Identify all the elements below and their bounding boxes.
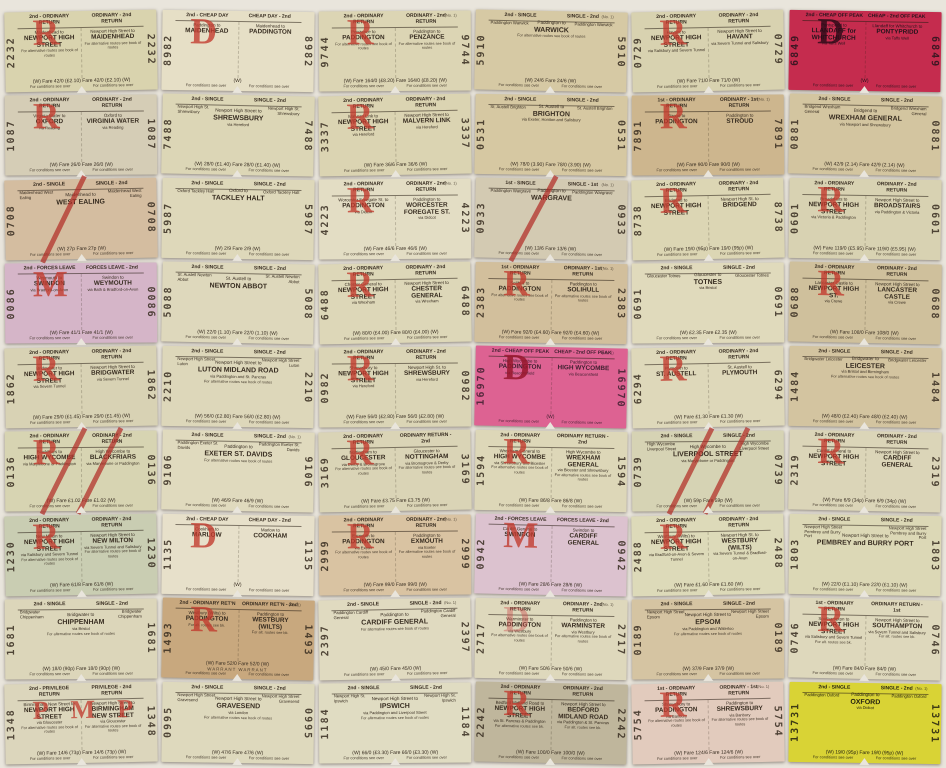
conditions-text-left: For conditions see over — [344, 505, 385, 510]
conditions-line: For conditions see over For conditions s… — [19, 587, 145, 594]
railway-ticket: 0189 2nd - SINGLE SINGLE - 2nd — [632, 598, 785, 679]
conditions-line: For conditions see over For conditions s… — [646, 419, 772, 426]
outward-half: Bridgend to NEWPORT HIGH STREET — [645, 196, 709, 248]
return-half: Paddington to STROUD — [708, 111, 771, 162]
class-header-right: FORCES LEAVE - 2nd — [83, 266, 141, 272]
conditions-text-right: For conditions see over — [719, 504, 759, 509]
routes-note: For alternative routes see book of route… — [84, 40, 142, 50]
outward-half: Maidenhead to NEWPORT HIGH STREET For al… — [18, 28, 82, 80]
corner-text-left: Maidenhead West Ealing — [20, 190, 62, 200]
route-via-text: via Marylebone or Paddington — [647, 458, 769, 464]
railway-ticket: 0708 2nd - SINGLE SINGLE - 2nd — [5, 178, 159, 261]
corner-text-right: St. Austell Brighton — [577, 106, 612, 111]
ticket-body: Havant to NEWPORT HIGH STREET via Salisb… — [645, 26, 772, 79]
ticket-face: 2nd - SINGLE SINGLE - 2nd — [18, 601, 145, 678]
conditions-text-left: For conditions see over — [657, 85, 698, 90]
serial-number-right: 7891 — [771, 94, 785, 174]
serial-number-right: 0739 — [771, 430, 785, 510]
return-halves: Broadstairs to NEWPORT HIGH STREET via V… — [801, 195, 928, 248]
single-span: Paddington Exeter St. Davids Paddington … — [174, 440, 301, 499]
conditions-text-right: For conditions see over — [875, 169, 916, 175]
serial-number-left: 2397 — [318, 600, 333, 680]
serial-number-right: 1484 — [927, 348, 941, 428]
class-header-right: ORDINARY RETURN - 2nd — [396, 433, 454, 446]
ticket-body: Weymouth to SWINDON via Bradford-on-Avon… — [18, 273, 144, 330]
conditions-line: For conditions see over For conditions s… — [646, 755, 772, 762]
route-via-text: via Victoria & Paddington — [804, 215, 863, 221]
ticket-face: (No. 1) 2nd - SINGLE SINGLE - 2nd — [174, 432, 302, 511]
railway-ticket: 0729 2nd - ORDINARY RETURN ORDINARY - 2n… — [631, 10, 785, 93]
routes-note: For alternative routes see book of route… — [554, 634, 612, 644]
conditions-line: For conditions see over For conditions s… — [332, 671, 458, 678]
ticket-face: 2nd - FORCES LEAVE FORCES LEAVE - 2nd We… — [18, 265, 145, 342]
return-halves: Blackfriars to HIGH WYCOMBE via Marylebo… — [18, 447, 144, 499]
conditions-line: For conditions see over For conditions s… — [801, 167, 927, 174]
ticket-face: 2nd - PRIVILEGE RETURN PRIVILEGE - 2nd R… — [18, 684, 145, 762]
serial-number-left: 5987 — [161, 178, 175, 258]
conditions-line: For conditions see over For conditions s… — [801, 587, 927, 594]
corner-text-right: Paddington Oxford — [891, 694, 926, 699]
serial-number-right: 0531 — [614, 96, 628, 176]
ticket-body: Shrewsbury to PADDINGTON via Banbury For… — [645, 698, 772, 751]
conditions-line: For conditions see over For conditions s… — [174, 671, 300, 678]
outward-half: Shrewsbury to NEWPORT HIGH STREET via He… — [331, 364, 394, 415]
route-via-text: via Crewe — [804, 299, 863, 305]
return-half: Newport High Street to CHESTER GENERAL v… — [394, 278, 458, 330]
routes-note: For alt. routes see bk. — [554, 725, 612, 731]
corner-text-left: Newport High St. Shrewsbury — [177, 104, 219, 115]
routes-note: For alternative routes see book of route… — [334, 466, 393, 476]
class-header-left: 2nd - ORDINARY RETURN — [21, 434, 79, 446]
routes-note: For alternative routes see book of route… — [398, 550, 456, 559]
ticket-body: Bridgwater Leicester Bridgwater Leiceste… — [801, 357, 928, 416]
route-via-text: via Paddington & Victoria — [868, 210, 926, 216]
routes-note: For alternative routes see book of route… — [490, 633, 549, 643]
railway-ticket: 7891 (No. 1) 1st - ORDINARY RETURN ORDIN… — [632, 94, 785, 175]
serial-number-right: 9106 — [300, 432, 315, 512]
conditions-text-left: For conditions see over — [499, 503, 540, 508]
outward-half: Broadstairs to NEWPORT HIGH STREET via V… — [801, 195, 865, 247]
destination-text: BRIDGEND — [711, 202, 769, 210]
railway-ticket: 2999 (No. 1) 2nd - ORDINARY RETURN ORDIN… — [318, 514, 471, 595]
outward-half: Bedford Midland Road to NEWPORT HIGH STR… — [488, 698, 552, 750]
conditions-line: For conditions see over For conditions s… — [174, 335, 300, 342]
railway-ticket: 1862 2nd - ORDINARY RETURN ORDINARY - 2n… — [5, 346, 159, 429]
return-half: Newport High Street to MAIDENHEAD For al… — [81, 26, 145, 78]
conditions-text-left: For conditions see over — [499, 419, 540, 425]
route-via-text: via Reading — [84, 125, 142, 130]
return-halves: Cookham to MARLOW Marlow to COOKHAM — [175, 525, 302, 584]
conditions-text-right: For conditions see over — [248, 169, 289, 175]
corner-text-right: Paddington Wargrave — [572, 190, 612, 196]
outward-half: Cardiff General to NEWPORT HIGH STREET — [801, 446, 865, 498]
serial-number-left: 4223 — [318, 179, 332, 259]
ticket-face: (No. 1) 2nd - SINGLE SINGLE - 2nd — [801, 684, 928, 762]
conditions-text-left: For conditions see over — [657, 253, 698, 258]
railway-ticket: 2717 (No. 1) 2nd - ORDINARY RETURN ORDIN… — [475, 598, 628, 680]
ticket-face: 2nd - ORDINARY RETURN ORDINARY - 2nd RET… — [18, 433, 145, 510]
class-header-left: 2nd - SINGLE — [648, 602, 706, 608]
outward-half: Paddington to MAIDENHEAD — [175, 21, 239, 79]
serial-number-right: 0691 — [771, 262, 785, 342]
ticket-face: 2nd - ORDINARY RETURN ORDINARY - 2nd RET… — [331, 349, 458, 426]
conditions-line: For conditions see over For conditions s… — [646, 83, 772, 90]
series-number-note: (No. 1) — [757, 97, 769, 102]
return-halves: High Wycombe to PADDINGTON via Beaconsfi… — [488, 356, 615, 415]
destination-text: WESTBURY (WILTS) — [241, 617, 299, 632]
route-via-text: via Wrexham — [334, 300, 393, 306]
ticket-body: Broadstairs to NEWPORT HIGH STREET via V… — [801, 195, 928, 248]
outward-half: Cardiff General to SWINDON — [488, 524, 552, 582]
class-header-left: 2nd - SINGLE — [179, 97, 237, 104]
ticket-face: 2nd - SINGLE SINGLE - 2nd — [174, 348, 301, 426]
conditions-line: For conditions see over For conditions s… — [488, 419, 614, 426]
outward-half: Wrexham General to HIGH WYCOMBE via Shre… — [488, 447, 552, 499]
ticket-body: Birmingham New Street to NEWPORT HIGH ST… — [18, 698, 145, 751]
ticket-face: 2nd - ORDINARY RETURN ORDINARY RETURN - … — [331, 432, 458, 510]
return-half: Paddington to SHREWSBURY via Banbury For… — [708, 698, 772, 750]
destination-text: PADDINGTON — [241, 29, 299, 37]
single-span: St. Austell Newton Abbot St. Austell New… — [174, 272, 301, 331]
conditions-line: For conditions see over For conditions s… — [801, 755, 927, 762]
ticket-face: (No. 1) 2nd - ORDINARY RETURN ORDINARY -… — [331, 13, 458, 90]
railway-ticket: 6294 2nd - ORDINARY RETURN ORDINARY - 2n… — [631, 346, 785, 429]
ticket-face: (No. 1) 2nd - CHEAP OFF PEAK CHEAP - 2nd… — [488, 348, 616, 427]
return-half: Llandaff for Whitchurch to PONTYPRIDD vi… — [864, 22, 928, 80]
single-span: Paddington Warwick Paddington Warwick Pa… — [488, 20, 615, 79]
ticket-body: Maidenhead to NEWPORT HIGH STREET For al… — [18, 26, 145, 79]
conditions-text-left: For conditions see over — [185, 167, 226, 173]
destination-text: CARDIFF GENERAL — [555, 533, 613, 548]
class-header-left: 2nd - ORDINARY RETURN — [334, 14, 392, 26]
serial-number-right: 2397 — [457, 598, 472, 678]
ticket-body: Paddington Wargrave Paddington Wargrave … — [488, 188, 615, 247]
ticket-face: 2nd - FORCES LEAVE FORCES LEAVE - 2nd Ca… — [488, 516, 616, 595]
routes-note: For alternative routes see book of route… — [398, 41, 456, 50]
conditions-text-left: For conditions see over — [812, 167, 853, 173]
ticket-body: Exmouth to PADDINGTON via Exeter For alt… — [331, 531, 457, 583]
conditions-text-left: For conditions see over — [30, 85, 71, 90]
route-via-text: via Hereford — [398, 377, 456, 382]
ticket-face: 2nd - ORDINARY RETURN ORDINARY - 2nd RET… — [331, 264, 458, 342]
ticket-face: (No. 1) 1st - ORDINARY RETURN ORDINARY -… — [644, 684, 771, 762]
railway-ticket: 0531 2nd - SINGLE SINGLE - 2nd — [475, 94, 628, 176]
class-header-right: SINGLE - 2nd — [241, 686, 299, 693]
ticket-body: St. Austell Newton Abbot St. Austell New… — [174, 272, 301, 331]
return-half: Newport High Street to BRIDGWATER via Se… — [81, 362, 145, 414]
serial-number-right: 0189 — [771, 598, 785, 678]
ticket-face: 2nd - SINGLE SINGLE - 2nd — [801, 516, 928, 594]
conditions-text-right: For conditions see over — [719, 672, 759, 677]
corner-text-left: St. Austell Newton Abbot — [177, 272, 219, 283]
ticket-body: Stroud to PADDINGTON Paddington to STROU… — [645, 111, 771, 163]
routes-note: For alternative routes see book of route… — [177, 715, 299, 721]
conditions-text-right: For conditions see over — [249, 252, 290, 257]
conditions-text-left: For conditions see over — [499, 167, 540, 172]
return-halves: Birmingham New Street to NEWPORT HIGH ST… — [18, 698, 145, 751]
conditions-text-right: For conditions see over — [93, 587, 134, 592]
conditions-text-right: For conditions see over — [875, 337, 916, 343]
routes-note: For alternative routes see book of route… — [334, 550, 393, 559]
conditions-text-right: For conditions see over — [407, 671, 448, 676]
class-header-row: 2nd - ORDINARY RETURN ORDINARY - 2nd RET… — [18, 97, 144, 112]
routes-note: For alternative routes see book of route… — [177, 379, 299, 385]
conditions-text-left: For conditions see over — [656, 168, 696, 173]
serial-number-left: 1484 — [788, 346, 802, 426]
conditions-text-left: For conditions see over — [344, 337, 385, 342]
serial-number-right: 0933 — [613, 180, 628, 260]
railway-ticket: 5987 2nd - SINGLE SINGLE - 2nd — [161, 178, 314, 260]
serial-number-right: 1230 — [144, 514, 159, 594]
railway-ticket: 0688 2nd - ORDINARY RETURN ORDINARY - 2n… — [788, 261, 942, 344]
single-span: High Wycombe Liverpool Street High Wycom… — [645, 441, 771, 498]
conditions-line: For conditions see over For conditions s… — [19, 251, 145, 258]
conditions-line: For conditions see over For conditions s… — [646, 251, 772, 258]
outward-half: Malvern Link to NEWPORT HIGH STREET via … — [331, 112, 395, 164]
outward-half: Virginia Water to OXFORD via Reading — [18, 112, 81, 163]
class-header-left: 2nd - ORDINARY RETURN — [805, 265, 863, 278]
ticket-face: (No. 1) 2nd - ORDINARY RETURN ORDINARY -… — [488, 600, 615, 678]
single-span: Newport High Street Epsom Newport High S… — [645, 609, 771, 666]
ticket-face: 2nd - ORDINARY RETURN ORDINARY - 2nd RET… — [331, 96, 458, 174]
outward-half: Westbury (Wilts) to PADDINGTON For alt. … — [175, 608, 239, 661]
conditions-text-right: For conditions see over — [248, 505, 289, 511]
conditions-line: For conditions see over For conditions s… — [645, 168, 771, 174]
class-header-left: 2nd - ORDINARY RETURN — [492, 601, 550, 613]
single-span: Maidenhead West Ealing Maidenhead West E… — [18, 189, 145, 248]
conditions-line: For conditions see over For conditions s… — [332, 420, 458, 426]
return-half: Newport High St. to SHREWSBURY via Heref… — [394, 363, 457, 414]
conditions-text-right: For conditions see over — [93, 336, 133, 341]
class-header-left: 2nd - SINGLE — [334, 602, 392, 609]
ticket-body: Bridgend Wrexham General Bridgend Wrexha… — [801, 104, 928, 163]
conditions-line: For conditions see over For conditions s… — [801, 251, 927, 258]
railway-ticket: 0746 1st - ORDINARY RETURN ORDINARY RETU… — [788, 597, 942, 680]
class-header-right: ORDINARY - 2nd RETURN — [83, 517, 141, 530]
conditions-line: For conditions see over For conditions s… — [19, 419, 145, 426]
conditions-text-right: For conditions see over — [562, 421, 603, 427]
serial-number-right: 0708 — [144, 178, 159, 258]
return-halves: Stroud to PADDINGTON Paddington to STROU… — [645, 111, 771, 163]
class-header-left: 2nd - ORDINARY RETURN — [647, 350, 705, 363]
serial-number-right: 1184 — [457, 682, 471, 762]
route-via-text: via Crewe — [868, 300, 926, 306]
ticket-body: Newport High Street Luton Newport High S… — [175, 357, 302, 416]
ticket-face: 2nd - SINGLE SINGLE - 2nd — [174, 180, 301, 258]
class-header-right: CHEAP DAY - 2nd — [241, 14, 299, 21]
class-header-left: 2nd - ORDINARY RETURN — [21, 98, 79, 110]
ticket-body: Bridgwater to NEWPORT HIGH STREET via Se… — [18, 362, 145, 415]
return-half: Newport High Street to BEDFORD MIDLAND R… — [551, 700, 615, 752]
ticket-face: (No. 1) 2nd - ORDINARY RET'N ORDINARY RE… — [174, 600, 302, 679]
railway-ticket: 1493 (No. 1) 2nd - ORDINARY RET'N ORDINA… — [161, 597, 315, 680]
destination-text: CARDIFF GENERAL — [868, 455, 926, 470]
class-header-right: SINGLE - 2nd — [83, 181, 141, 188]
railway-ticket: 1803 2nd - SINGLE SINGLE - 2nd — [788, 514, 941, 596]
railway-ticket: 13731 (No. 1) 2nd - SINGLE SINGLE - 2nd — [788, 682, 941, 764]
conditions-text-left: For conditions see over — [30, 253, 71, 258]
corner-text-left: Paddington Wargrave — [491, 188, 531, 194]
ticket-face: 2nd - SINGLE SINGLE - 2nd — [645, 265, 772, 342]
conditions-text-left: For conditions see over — [30, 168, 70, 173]
class-header-left: 2nd - ORDINARY RETURN — [334, 518, 392, 530]
class-header-right: ORDINARY - 2nd RETURN — [868, 266, 926, 279]
serial-number-left: 0688 — [788, 261, 803, 341]
return-halves: Shrewsbury to PADDINGTON via Banbury For… — [645, 698, 772, 751]
class-header-row: 1st - ORDINARY RETURN ORDINARY - 1st RET… — [645, 97, 771, 112]
series-number-note: (No. 1) — [444, 600, 456, 605]
single-span: Bridgwater Chippenham Bridgwater Chippen… — [18, 609, 144, 666]
serial-number-right: 6488 — [457, 262, 472, 342]
destination-text: MAIDENHEAD — [177, 28, 236, 36]
corner-text-left: Paddington Warwick — [491, 20, 529, 26]
conditions-text-left: For conditions see over — [657, 589, 698, 594]
class-header-right: ORDINARY - 2nd RETURN — [710, 349, 768, 362]
ticket-face: 2nd - ORDINARY RETURN ORDINARY - 2nd RET… — [18, 12, 145, 90]
conditions-line: For conditions see over For conditions s… — [174, 503, 300, 510]
class-header-left: 2nd - FORCES LEAVE — [492, 517, 550, 524]
class-header-left: 1st - ORDINARY RETURN — [492, 265, 550, 277]
railway-ticket: 0136 2nd - ORDINARY RETURN ORDINARY - 2n… — [5, 430, 158, 511]
conditions-text-right: For conditions see over — [407, 503, 448, 508]
conditions-text-left: For conditions see over — [656, 504, 696, 509]
outward-half: Bridgwater to NEWPORT HIGH STREET via Se… — [18, 364, 82, 416]
conditions-line: For conditions see over For conditions s… — [174, 83, 300, 90]
single-span: Newport High St. Ipswich Newport High St… — [331, 693, 457, 750]
corner-text-left: Newport High Street Pembrey and Burry Po… — [804, 525, 846, 540]
corner-text-left: St. Austell Brighton — [491, 105, 526, 110]
corner-text-left: High Wycombe Liverpool Street — [647, 442, 689, 452]
conditions-line: For conditions see over For conditions s… — [332, 503, 458, 510]
class-header-left: 2nd - ORDINARY RETURN — [21, 350, 79, 363]
return-half: Maidenhead to PADDINGTON — [238, 22, 302, 80]
railway-ticket: 1230 2nd - ORDINARY RETURN ORDINARY - 2n… — [5, 514, 159, 597]
class-header-right: SINGLE - 2nd — [241, 350, 299, 357]
railway-ticket: 16970 (No. 1) 2nd - CHEAP OFF PEAK CHEAP… — [475, 345, 629, 428]
return-halves: Bedford Midland Road to NEWPORT HIGH STR… — [488, 698, 615, 751]
return-halves: Lancaster Castle to NEWPORT HIGH ST. via… — [801, 278, 928, 331]
conditions-text-left: For conditions see over — [344, 673, 385, 678]
outward-half: Lancaster Castle to NEWPORT HIGH ST. via… — [801, 278, 865, 330]
route-via-text: via Taffs Well — [868, 36, 926, 42]
serial-number-left: 2319 — [788, 429, 803, 509]
serial-number-left: 13731 — [788, 682, 802, 762]
return-half: Oxford to VIRGINIA WATER via Reading — [81, 111, 144, 162]
conditions-line: For conditions see over For conditions s… — [174, 251, 300, 258]
ticket-face: 2nd - ORDINARY RETURN ORDINARY - 2nd RET… — [18, 97, 145, 174]
class-header-left: 2nd - ORDINARY RET'N — [179, 601, 237, 608]
ticket-body: Worcester Foregate St. to PADDINGTON via… — [331, 195, 457, 247]
destination-text: MARLOW — [177, 532, 236, 540]
class-header-row: 2nd - ORDINARY RETURN ORDINARY - 2nd RET… — [331, 349, 457, 364]
route-via-text: via Bath & Bradford-on-Avon — [84, 287, 142, 292]
outward-half: High Wycombe to PADDINGTON via Beaconsfi… — [488, 356, 552, 414]
outward-half: Blackfriars to HIGH WYCOMBE via Marylebo… — [18, 448, 81, 499]
ticket-body: Newport High Street Epsom Newport High S… — [645, 609, 771, 666]
ticket-body: Pontypridd to LLANDAFF for WHITCHURCH vi… — [801, 21, 928, 80]
serial-number-right: 2242 — [613, 684, 628, 764]
conditions-text-left: For conditions see over — [344, 169, 385, 174]
conditions-text-right: For conditions see over — [93, 672, 133, 677]
return-half: Newport High Street to SOUTHAMPTON via S… — [864, 616, 928, 668]
ticket-face: 2nd - SINGLE SINGLE - 2nd — [645, 601, 772, 678]
routes-note: For alternative routes see book of route… — [804, 374, 926, 380]
conditions-text-right: For conditions see over — [562, 168, 603, 173]
conditions-line: For conditions see over For conditions s… — [646, 587, 772, 594]
railway-ticket: 0933 (No. 1) 1st - SINGLE SINGLE - 1st — [475, 177, 629, 260]
serial-number-left: 6849 — [788, 10, 802, 90]
class-header-right: ORDINARY RETURN - 2nd — [554, 434, 612, 446]
railway-ticket: 3169 2nd - ORDINARY RETURN ORDINARY RETU… — [318, 430, 472, 513]
conditions-text-right: For conditions see over — [93, 755, 134, 760]
railway-ticket: 6488 2nd - ORDINARY RETURN ORDINARY - 2n… — [318, 262, 472, 345]
return-halves: Paddington to MAIDENHEAD Maidenhead to P… — [175, 21, 302, 80]
serial-number-right: 3169 — [457, 430, 472, 510]
serial-number-left: 8982 — [161, 10, 175, 90]
ticket-face: 2nd - SINGLE SINGLE - 2nd — [801, 96, 929, 175]
corner-text-left: Paddington Exeter St. Davids — [177, 440, 219, 451]
conditions-line: For conditions see over For conditions s… — [645, 336, 771, 342]
ticket-body: Bridgwater Chippenham Bridgwater Chippen… — [18, 609, 144, 666]
railway-ticket: 2488 2nd - ORDINARY RETURN ORDINARY - 2n… — [631, 514, 785, 597]
outward-half: Chester General to NEWPORT HIGH STREET v… — [331, 280, 395, 332]
ticket-body: Westbury (Wilts) to NEWPORT HIGH STREET … — [645, 530, 772, 583]
conditions-text-left: For conditions see over — [30, 672, 70, 677]
conditions-text-left: For conditions see over — [186, 419, 227, 424]
corner-text-left: Newport High Street Epsom — [647, 610, 689, 620]
conditions-text-left: For conditions see over — [812, 671, 853, 677]
class-header-left: 2nd - SINGLE — [178, 685, 236, 692]
serial-number-left: 3169 — [318, 432, 333, 512]
conditions-text-right: For conditions see over — [407, 167, 448, 172]
conditions-text-left: For conditions see over — [812, 755, 853, 760]
routes-note: For alternative routes see book of route… — [647, 718, 706, 728]
conditions-text-right: For conditions see over — [248, 673, 289, 679]
conditions-text-right: For conditions see over — [875, 673, 916, 679]
serial-number-right: 6294 — [770, 346, 785, 426]
conditions-text-right: For conditions see over — [875, 505, 916, 511]
class-header-row: 2nd - ORDINARY RETURN ORDINARY - 2nd RET… — [331, 517, 457, 532]
return-halves: Exmouth to PADDINGTON via Exeter For alt… — [331, 531, 457, 583]
class-header-right: FORCES LEAVE - 2nd — [554, 518, 612, 525]
class-header-left: 2nd - SINGLE — [334, 686, 392, 692]
ticket-body: Chester General to NEWPORT HIGH STREET v… — [331, 278, 458, 331]
ticket-face: 2nd - SINGLE SINGLE - 2nd — [18, 180, 145, 258]
conditions-text-right: For conditions see over — [562, 85, 603, 91]
class-header-right: ORDINARY - 2nd RETURN — [868, 434, 926, 447]
series-number-note: (No. 1) — [288, 434, 300, 439]
corner-text-right: Newport High Street Pembrey and Burry Po… — [884, 526, 926, 541]
route-via-text: via Severn Tunnel & Bradford-on-Avon — [711, 551, 769, 562]
class-header-right: ORDINARY - 2nd RETURN — [396, 97, 454, 110]
railway-ticket: 3337 2nd - ORDINARY RETURN ORDINARY - 2n… — [318, 94, 472, 177]
ticket-body: Gloucester Totnes Gloucester Totnes Glou… — [645, 273, 771, 330]
ticket-face: 2nd - SINGLE SINGLE - 2nd — [801, 348, 928, 426]
class-header-left: 2nd - ORDINARY RETURN — [21, 518, 79, 531]
serial-number-right: 1594 — [614, 432, 628, 512]
ticket-body: Paddington to MAIDENHEAD Maidenhead to P… — [175, 21, 302, 80]
conditions-text-left: For conditions see over — [499, 587, 540, 593]
class-header-left: 2nd - SINGLE — [805, 97, 863, 104]
class-header-left: 2nd - ORDINARY RETURN — [647, 518, 705, 531]
conditions-text-right: For conditions see over — [406, 420, 446, 425]
railway-ticket: 0942 2nd - FORCES LEAVE FORCES LEAVE - 2… — [475, 513, 629, 596]
destination-text: COOKHAM — [241, 533, 299, 541]
conditions-text-left: For conditions see over — [812, 335, 853, 341]
conditions-text-right: For conditions see over — [720, 755, 761, 760]
return-halves: Worcester Foregate St. to PADDINGTON via… — [331, 195, 457, 247]
class-header-left: 2nd - FORCES LEAVE — [21, 266, 79, 272]
